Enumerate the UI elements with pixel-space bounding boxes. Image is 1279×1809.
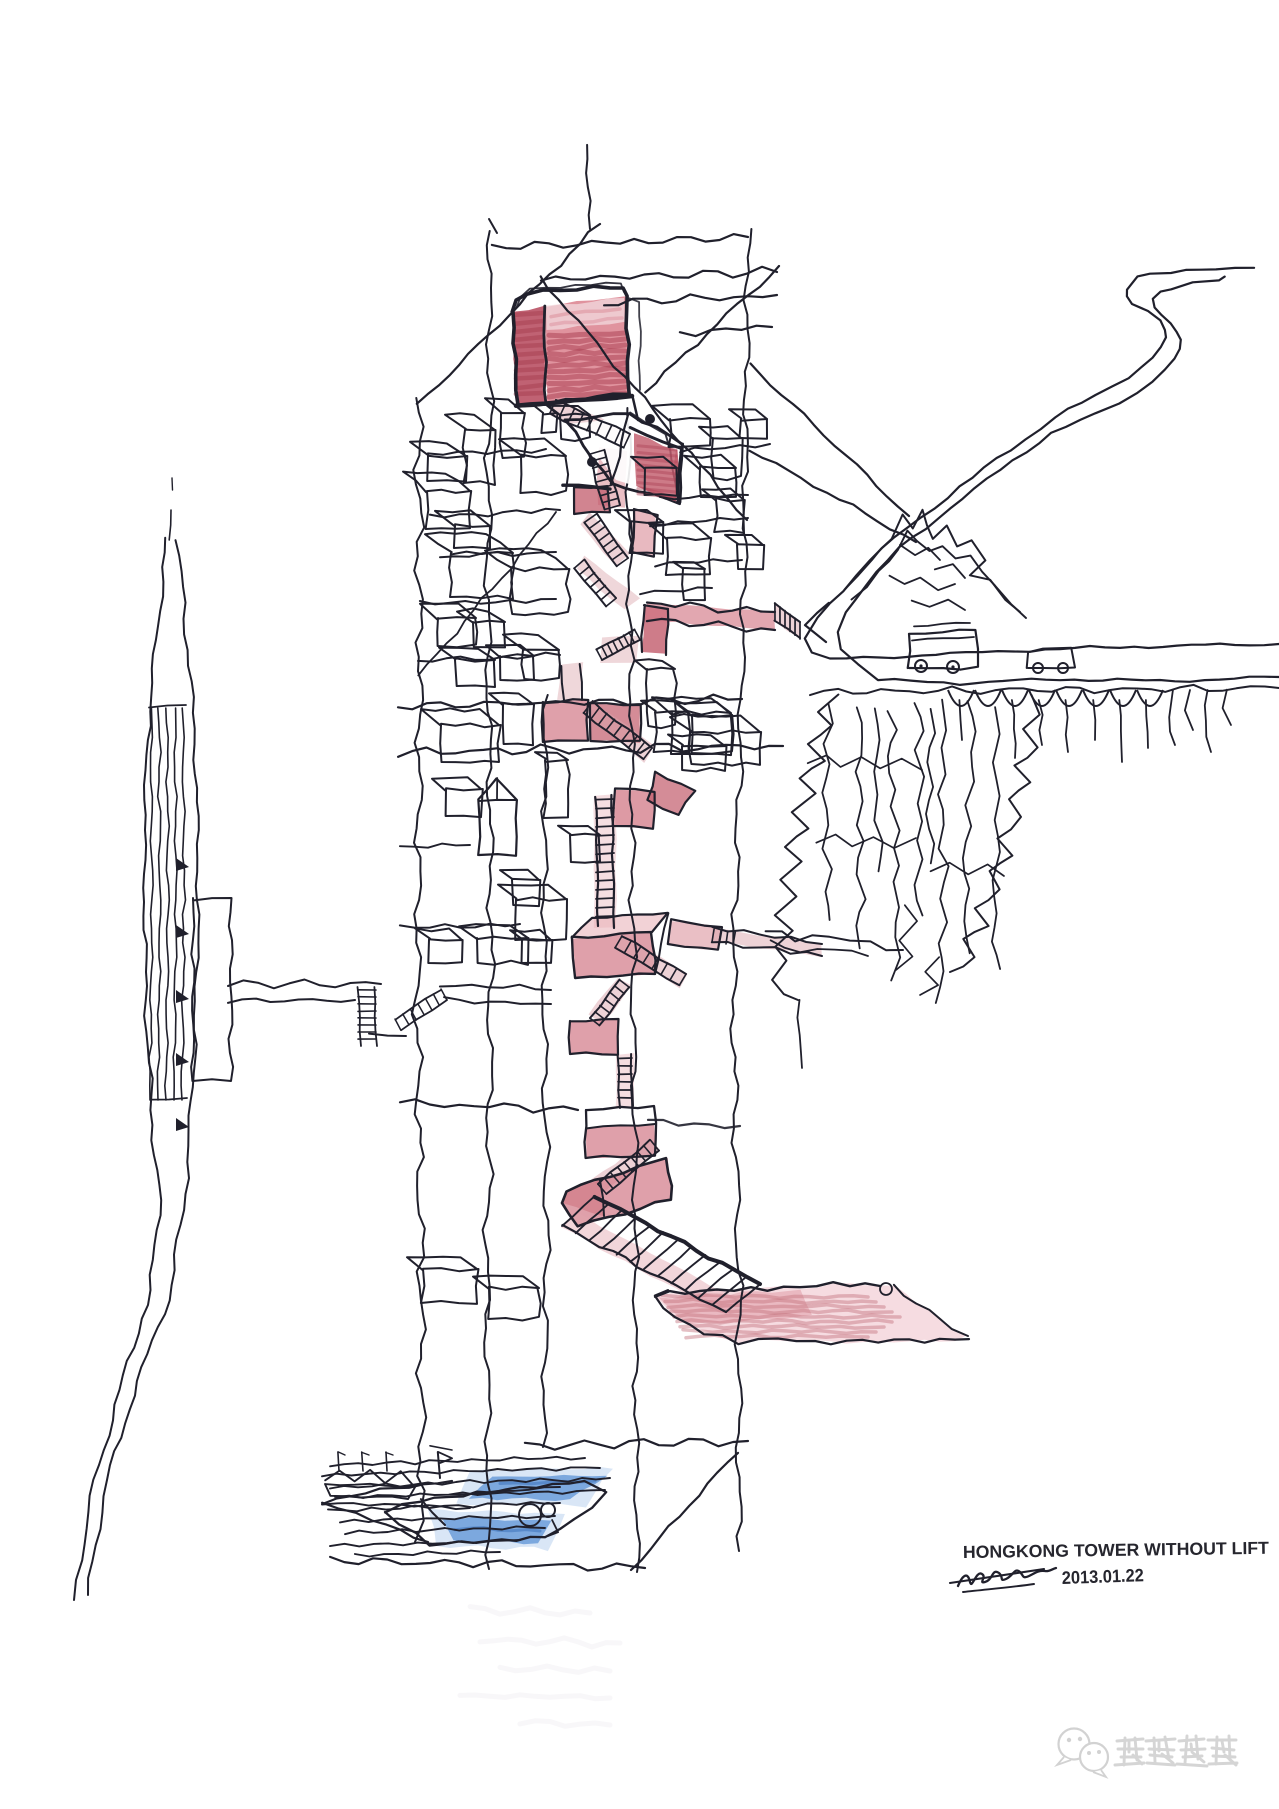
- svg-text:HONGKONG TOWER WITHOUT LIFT: HONGKONG TOWER WITHOUT LIFT: [963, 1538, 1270, 1562]
- svg-text:2013.01.22: 2013.01.22: [1061, 1565, 1144, 1588]
